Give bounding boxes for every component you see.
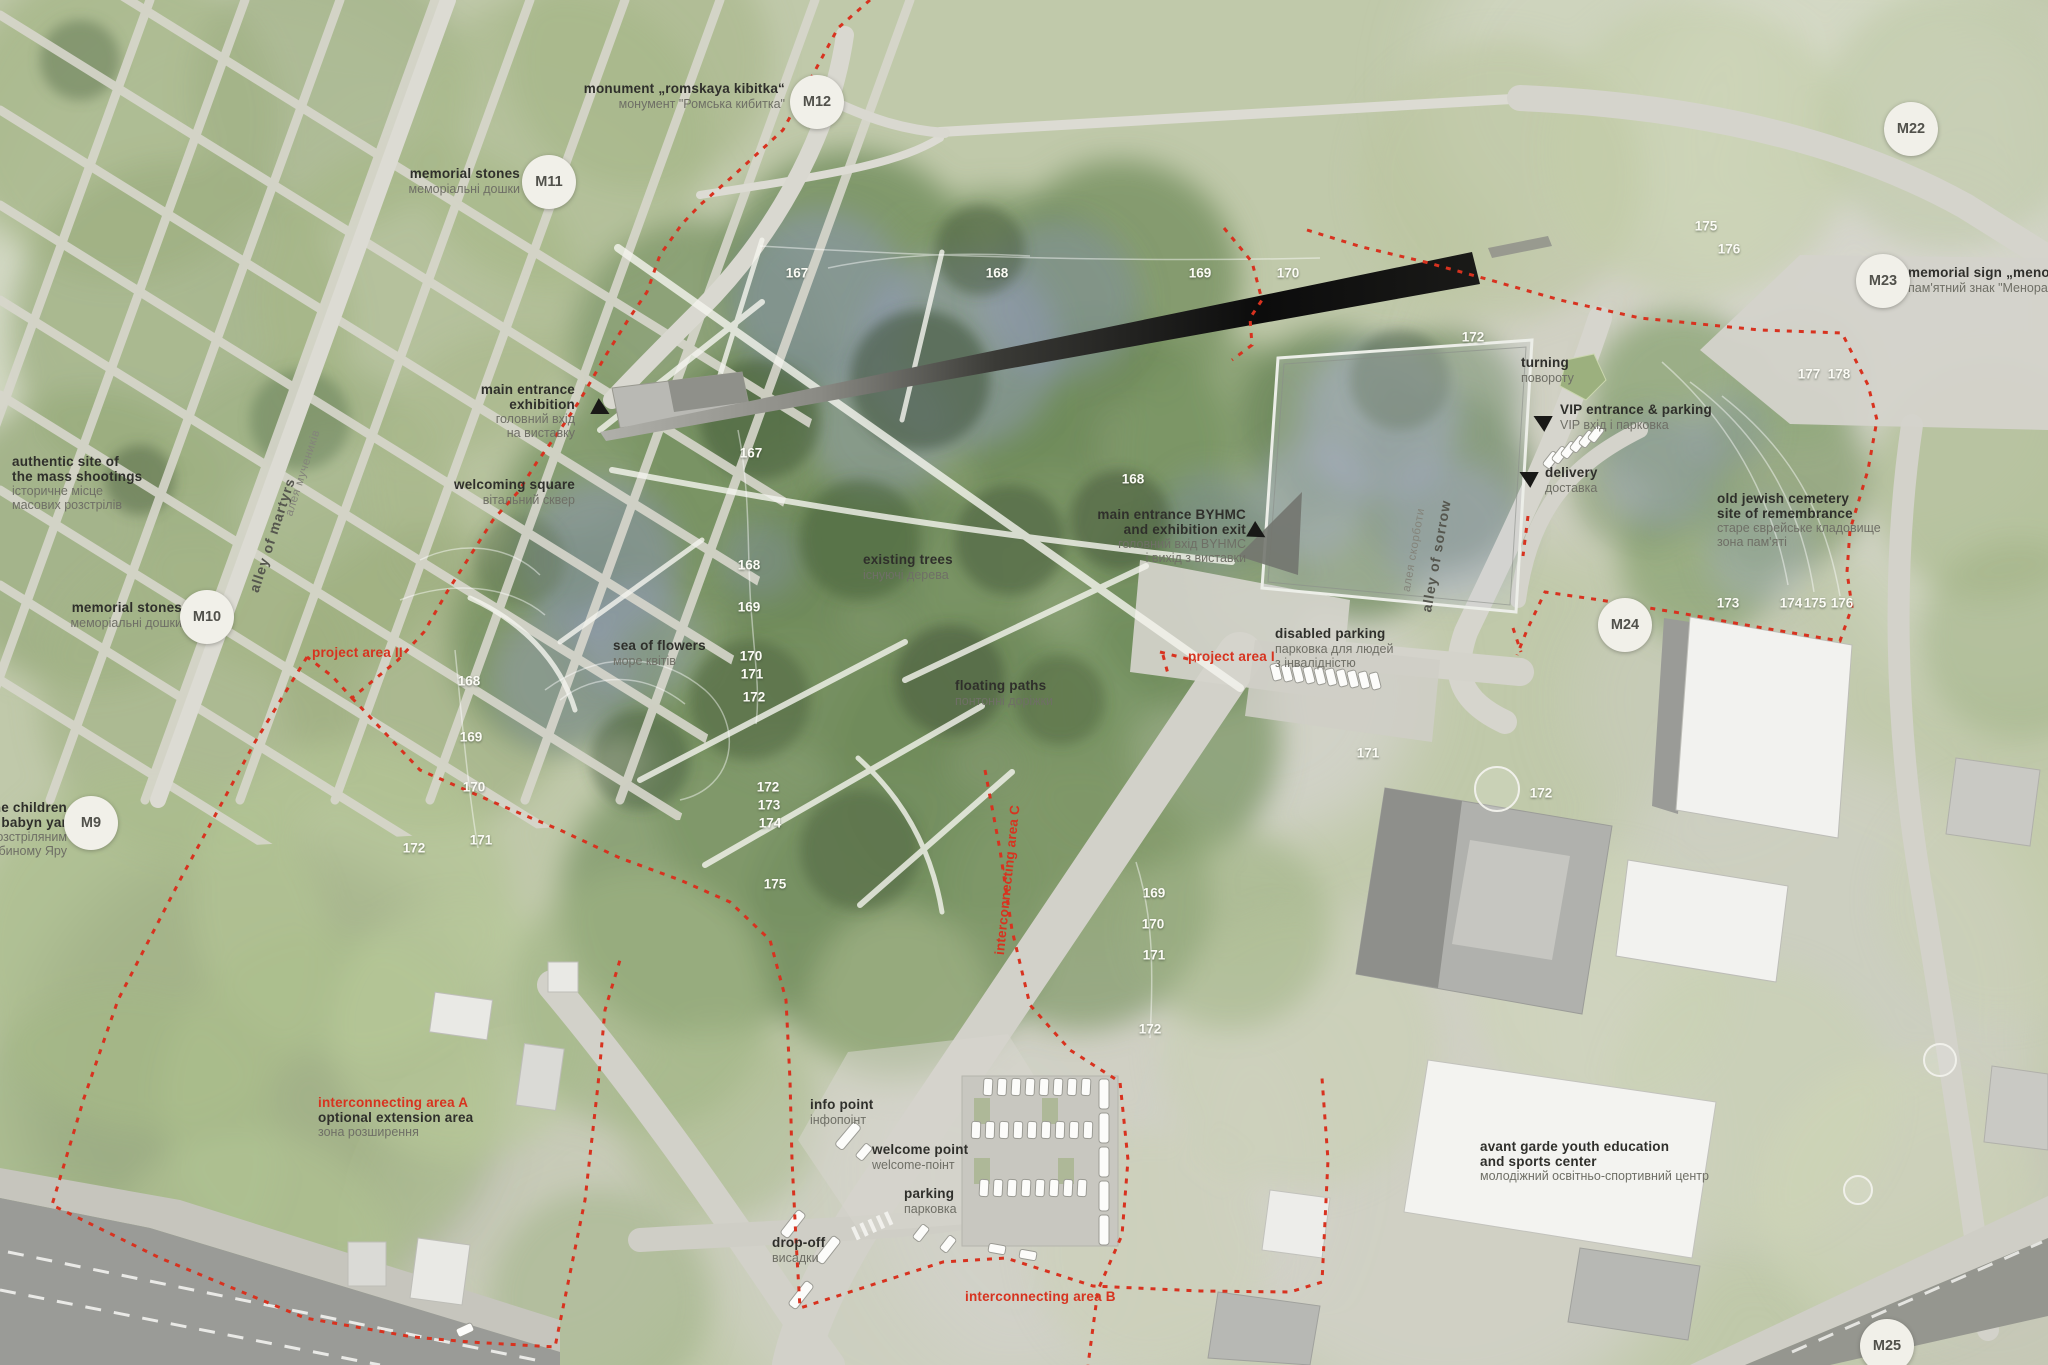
elevation-mark: 168 (1122, 472, 1145, 487)
memorial-stones-m11-label: memorial stonesмеморіальні дошки (409, 167, 520, 196)
elevation-mark: 173 (758, 798, 781, 813)
memorial-stones-m10-label: memorial stonesмеморіальні дошки (71, 601, 182, 630)
memorial-sign-menorah-text: пам'ятний знак "Менора" (1908, 281, 2048, 295)
disabled-parking-text: disabled parking (1275, 627, 1394, 642)
disabled-parking-text: з інвалідністю (1275, 656, 1394, 670)
alley-of-martyrs-ua-text: алея мучеників (283, 428, 322, 517)
site-plan-map: monument „romskaya kibitka“монумент "Ром… (0, 0, 2048, 1365)
old-jewish-cemetery-text: зона пам'яті (1717, 535, 1881, 549)
sea-of-flowers-text: море квітів (613, 654, 706, 668)
memorial-stones-m11-text: меморіальні дошки (409, 182, 520, 196)
existing-trees-text: existing trees (863, 553, 953, 568)
marker-M23: M23 (1856, 254, 1910, 308)
drop-off-text: висадки (772, 1251, 825, 1265)
labels-layer: monument „romskaya kibitka“монумент "Ром… (0, 0, 2048, 1365)
elevation-mark: 171 (1143, 948, 1166, 963)
drop-off-text: drop-off (772, 1236, 825, 1251)
main-entrance-byhmc-text: головний вхід BYHMC (1097, 537, 1246, 551)
main-entrance-exhibition-text: exhibition (481, 398, 575, 413)
elevation-mark: 169 (1143, 886, 1166, 901)
memorial-stones-m11-text: memorial stones (409, 167, 520, 182)
elevation-mark: 176 (1718, 242, 1741, 257)
floating-paths-text: floating paths (955, 679, 1053, 694)
project-area-1-label: project area I (1188, 650, 1275, 665)
authentic-site-mass-shootings-text: authentic site of (12, 455, 142, 470)
monument-romskaya-kibitka-text: монумент "Ромська кибитка" (584, 97, 785, 111)
main-entrance-exhibition-label: main entranceexhibitionголовний вхідна в… (481, 383, 575, 440)
marker-M24: M24 (1598, 598, 1652, 652)
turning-label: turningповороту (1521, 356, 1574, 385)
welcoming-square-text: вітальний сквер (454, 493, 575, 507)
welcome-point-label: welcome pointwelcome-поінт (872, 1143, 968, 1172)
existing-trees-text: існуючі дерева (863, 568, 953, 582)
elevation-mark: 173 (1717, 596, 1740, 611)
to-the-children-of-babyn-yar-text: дітям розстріляним (0, 830, 67, 844)
elevation-mark: 172 (1462, 330, 1485, 345)
interconnecting-area-a-label: interconnecting area Aoptional extension… (318, 1096, 473, 1139)
floating-paths-label: floating pathsпонтонні доріжки (955, 679, 1053, 708)
monument-romskaya-kibitka-label: monument „romskaya kibitka“монумент "Ром… (584, 82, 785, 111)
old-jewish-cemetery-text: site of remembrance (1717, 507, 1881, 522)
elevation-mark: 172 (403, 841, 426, 856)
byhmc-entrance-arrow (1246, 521, 1270, 545)
marker-M12: M12 (790, 75, 844, 129)
to-the-children-of-babyn-yar-label: to the childrenin babyn yarдітям розстрі… (0, 801, 67, 858)
alley-of-martyrs-ua-label: алея мучеників (283, 428, 322, 517)
elevation-mark: 171 (1357, 746, 1380, 761)
info-point-text: інфопоінт (810, 1113, 873, 1127)
elevation-mark: 168 (986, 266, 1009, 281)
main-entrance-byhmc-text: main entrance BYHMC (1097, 508, 1246, 523)
disabled-parking-text: парковка для людей (1275, 642, 1394, 656)
marker-M22: M22 (1884, 102, 1938, 156)
delivery-arrow (1515, 464, 1538, 488)
elevation-mark: 177 (1798, 367, 1821, 382)
elevation-mark: 168 (738, 558, 761, 573)
main-entrance-exhibition-text: головний вхід (481, 412, 575, 426)
vip-entrance-parking-text: VIP вхід і парковка (1560, 418, 1712, 432)
turning-text: повороту (1521, 371, 1574, 385)
to-the-children-of-babyn-yar-text: to the children (0, 801, 67, 816)
elevation-mark: 171 (741, 667, 764, 682)
elevation-mark: 172 (1139, 1022, 1162, 1037)
info-point-label: info pointінфопоінт (810, 1098, 873, 1127)
sea-of-flowers-label: sea of flowersморе квітів (613, 639, 706, 668)
elevation-mark: 176 (1831, 596, 1854, 611)
elevation-mark: 178 (1828, 367, 1851, 382)
elevation-mark: 174 (759, 816, 782, 831)
memorial-sign-menorah-label: memorial sign „menorah“пам'ятний знак "М… (1908, 266, 2048, 295)
disabled-parking-label: disabled parkingпарковка для людейз інва… (1275, 627, 1394, 670)
elevation-mark: 170 (1277, 266, 1300, 281)
elevation-mark: 170 (1142, 917, 1165, 932)
interconnecting-area-c-label: interconnecting area C (993, 804, 1023, 955)
main-entrance-exhibition-text: на виставку (481, 426, 575, 440)
welcoming-square-text: welcoming square (454, 478, 575, 493)
interconnecting-area-b-label: interconnecting area B (965, 1290, 1116, 1305)
marker-M25: M25 (1860, 1319, 1914, 1365)
parking-text: парковка (904, 1202, 957, 1216)
marker-M11: M11 (522, 155, 576, 209)
elevation-mark: 168 (458, 674, 481, 689)
elevation-mark: 172 (1530, 786, 1553, 801)
elevation-mark: 167 (740, 446, 763, 461)
parking-text: parking (904, 1187, 957, 1202)
elevation-mark: 175 (764, 877, 787, 892)
delivery-label: deliveryдоставка (1545, 466, 1598, 495)
welcoming-square-label: welcoming squareвітальний сквер (454, 478, 575, 507)
main-entrance-arrow (590, 398, 613, 422)
drop-off-label: drop-offвисадки (772, 1236, 825, 1265)
authentic-site-mass-shootings-text: the mass shootings (12, 470, 142, 485)
elevation-mark: 167 (786, 266, 809, 281)
vip-entrance-arrow (1529, 408, 1552, 432)
avant-garde-youth-center-text: and sports center (1480, 1155, 1709, 1170)
vip-entrance-parking-label: VIP entrance & parkingVIP вхід і парковк… (1560, 403, 1712, 432)
turning-text: turning (1521, 356, 1574, 371)
existing-trees-label: existing treesіснуючі дерева (863, 553, 953, 582)
authentic-site-mass-shootings-text: масових розстрілів (12, 498, 142, 512)
welcome-point-text: welcome-поінт (872, 1158, 968, 1172)
main-entrance-exhibition-text: main entrance (481, 383, 575, 398)
memorial-sign-menorah-text: memorial sign „menorah“ (1908, 266, 2048, 281)
sea-of-flowers-text: sea of flowers (613, 639, 706, 654)
project-area-1-text: project area I (1188, 650, 1275, 665)
main-entrance-byhmc-label: main entrance BYHMCand exhibition exitго… (1097, 508, 1246, 565)
authentic-site-mass-shootings-text: історичне місце (12, 484, 142, 498)
to-the-children-of-babyn-yar-text: in babyn yar (0, 816, 67, 831)
project-area-2-text: project area II (312, 646, 403, 661)
authentic-site-mass-shootings-label: authentic site ofthe mass shootingsістор… (12, 455, 142, 512)
monument-romskaya-kibitka-text: monument „romskaya kibitka“ (584, 82, 785, 97)
interconnecting-area-a-text: зона розширення (318, 1125, 473, 1139)
elevation-mark: 170 (740, 649, 763, 664)
elevation-mark: 175 (1804, 596, 1827, 611)
elevation-mark: 172 (743, 690, 766, 705)
welcome-point-text: welcome point (872, 1143, 968, 1158)
main-entrance-byhmc-text: і вихід з виставки (1097, 551, 1246, 565)
marker-M10: M10 (180, 590, 234, 644)
elevation-mark: 171 (470, 833, 493, 848)
interconnecting-area-c-text: interconnecting area C (993, 804, 1023, 955)
avant-garde-youth-center-text: avant garde youth education (1480, 1140, 1709, 1155)
old-jewish-cemetery-text: старе єврейське кладовище (1717, 521, 1881, 535)
marker-M9: M9 (64, 796, 118, 850)
vip-entrance-parking-text: VIP entrance & parking (1560, 403, 1712, 418)
elevation-mark: 175 (1695, 219, 1718, 234)
interconnecting-area-b-text: interconnecting area B (965, 1290, 1116, 1305)
main-entrance-byhmc-text: and exhibition exit (1097, 523, 1246, 538)
delivery-text: доставка (1545, 481, 1598, 495)
avant-garde-youth-center-label: avant garde youth educationand sports ce… (1480, 1140, 1709, 1183)
elevation-mark: 169 (738, 600, 761, 615)
old-jewish-cemetery-text: old jewish cemetery (1717, 492, 1881, 507)
project-area-2-label: project area II (312, 646, 403, 661)
elevation-mark: 172 (757, 780, 780, 795)
memorial-stones-m10-text: меморіальні дошки (71, 616, 182, 630)
to-the-children-of-babyn-yar-text: у Бабиному Яру (0, 844, 67, 858)
avant-garde-youth-center-text: молодіжний освітньо-спортивний центр (1480, 1169, 1709, 1183)
info-point-text: info point (810, 1098, 873, 1113)
parking-label: parkingпарковка (904, 1187, 957, 1216)
interconnecting-area-a-text: optional extension area (318, 1111, 473, 1126)
elevation-mark: 169 (460, 730, 483, 745)
delivery-text: delivery (1545, 466, 1598, 481)
old-jewish-cemetery-label: old jewish cemeterysite of remembranceст… (1717, 492, 1881, 549)
elevation-mark: 174 (1780, 596, 1803, 611)
elevation-mark: 169 (1189, 266, 1212, 281)
elevation-mark: 170 (463, 780, 486, 795)
interconnecting-area-a-text: interconnecting area A (318, 1096, 473, 1111)
floating-paths-text: понтонні доріжки (955, 694, 1053, 708)
memorial-stones-m10-text: memorial stones (71, 601, 182, 616)
